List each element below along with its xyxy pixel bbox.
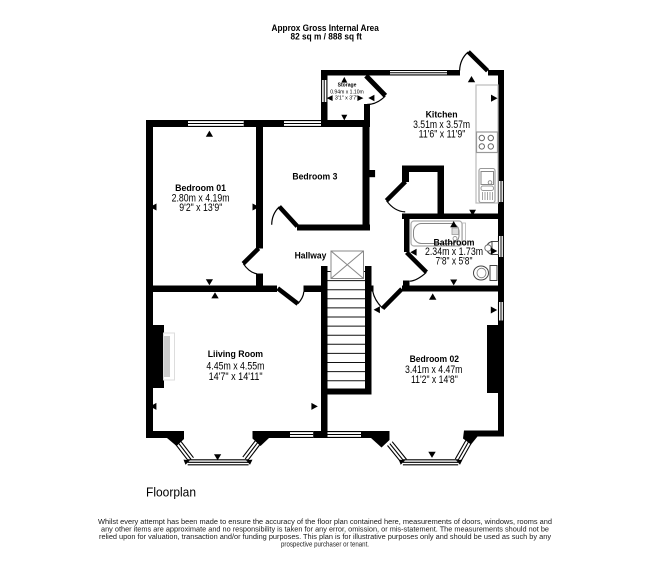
svg-text:11'2" x 14'8": 11'2" x 14'8" xyxy=(411,374,458,386)
svg-text:Hallway: Hallway xyxy=(295,251,327,261)
svg-text:3'1" x 3'7": 3'1" x 3'7" xyxy=(335,96,358,102)
svg-text:82 sq m / 888 sq ft: 82 sq m / 888 sq ft xyxy=(291,32,362,42)
svg-text:Storage: Storage xyxy=(338,83,357,89)
svg-text:7'8" x 5'8": 7'8" x 5'8" xyxy=(436,256,473,268)
svg-text:Floorplan: Floorplan xyxy=(146,484,196,499)
svg-text:14'7" x 14'11": 14'7" x 14'11" xyxy=(209,371,263,383)
svg-text:9'2" x 13'9": 9'2" x 13'9" xyxy=(179,202,222,214)
svg-text:Bedroom 3: Bedroom 3 xyxy=(292,171,337,181)
svg-text:prospective purchaser or tenan: prospective purchaser or tenant. xyxy=(281,541,369,548)
svg-text:Kitchen: Kitchen xyxy=(426,109,458,119)
svg-text:Bedroom 02: Bedroom 02 xyxy=(410,354,459,364)
svg-text:Whilst every attempt has been: Whilst every attempt has been made to en… xyxy=(98,519,552,526)
svg-text:relied upon for valuation, tra: relied upon for valuation, transaction a… xyxy=(99,534,552,541)
svg-text:11'6" x 11'9": 11'6" x 11'9" xyxy=(419,129,466,141)
svg-text:any other items are approximat: any other items are approximate and no r… xyxy=(101,526,549,533)
svg-text:Liiving Room: Liiving Room xyxy=(208,349,263,359)
svg-text:Bedroom 01: Bedroom 01 xyxy=(175,183,226,193)
